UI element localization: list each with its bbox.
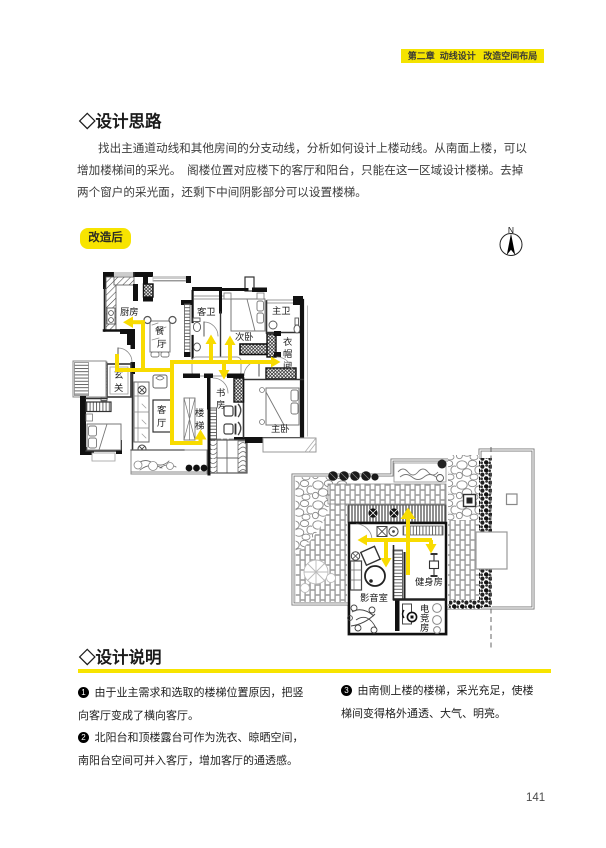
svg-text:次卧: 次卧	[235, 331, 254, 342]
svg-text:帽: 帽	[283, 348, 292, 359]
svg-text:影音室: 影音室	[360, 592, 388, 603]
svg-text:厅: 厅	[157, 339, 166, 349]
svg-text:主卫: 主卫	[272, 305, 291, 316]
svg-text:电: 电	[420, 603, 429, 614]
svg-text:餐: 餐	[155, 325, 164, 336]
svg-text:衣: 衣	[283, 336, 292, 347]
svg-text:竞: 竞	[420, 613, 429, 624]
svg-text:梯: 梯	[195, 420, 204, 431]
svg-text:房: 房	[420, 622, 429, 633]
svg-text:厨房: 厨房	[120, 306, 139, 317]
svg-text:健身房: 健身房	[415, 576, 443, 587]
svg-text:客: 客	[157, 404, 166, 415]
svg-text:N: N	[508, 225, 514, 235]
svg-text:客卫: 客卫	[197, 306, 216, 317]
svg-text:主卧: 主卧	[271, 423, 290, 434]
svg-text:楼: 楼	[195, 407, 204, 418]
svg-text:厅: 厅	[157, 418, 166, 428]
svg-text:关: 关	[114, 382, 123, 393]
svg-text:书: 书	[216, 388, 225, 398]
